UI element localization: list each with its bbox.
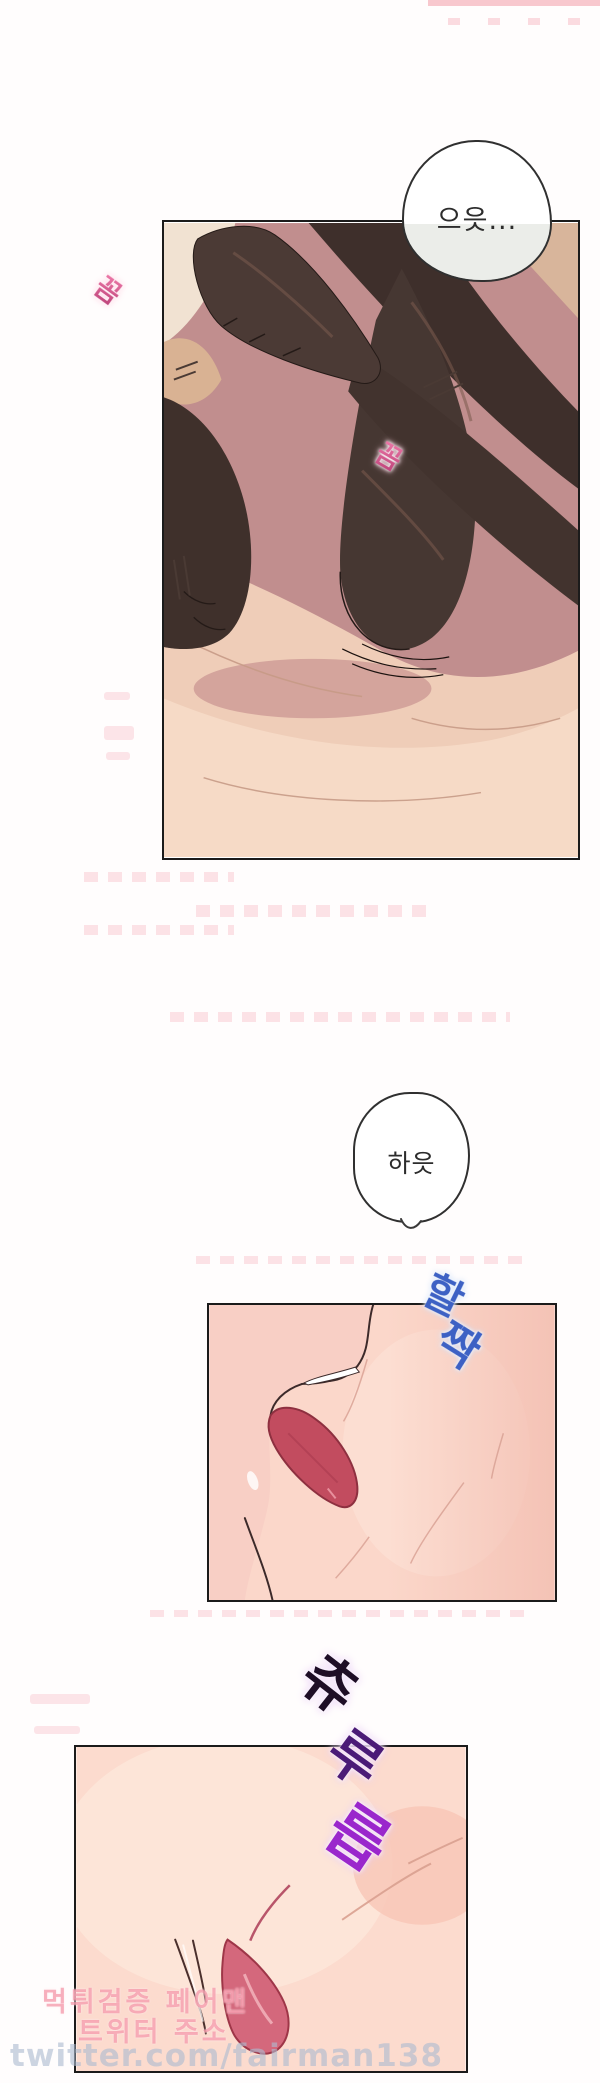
sfx-wiggle-1: 꼼지락 [88, 266, 171, 341]
watermark-top-strip [428, 0, 600, 6]
panel-1-illustration [164, 222, 578, 858]
sfx-slurp: 츄루릅 [306, 1632, 470, 1724]
panel-2-illustration [209, 1305, 555, 1600]
watermark-dot [528, 18, 540, 25]
watermark-smudge [150, 1610, 530, 1617]
speech-bubble-gasp: 하읏 [353, 1092, 470, 1223]
watermark-dot [568, 18, 580, 25]
watermark-smudge [104, 692, 130, 700]
watermark-dot [488, 18, 500, 25]
panel-1-bed-scene [162, 220, 580, 860]
panel-2-lick-scene [207, 1303, 557, 1602]
watermark-smudge [196, 1256, 526, 1264]
comic-page: 으읏... 하읏 꼼지락 꼼지락 할짝 츄루릅 먹튀검증 페어맨 트위터 주소 … [0, 0, 600, 2083]
speech-bubble-scream: 으읏... [402, 140, 552, 282]
speech-bubble-tail [398, 1218, 424, 1236]
watermark-smudge [34, 1726, 80, 1734]
watermark-url: twitter.com/fairman138 [10, 2038, 443, 2074]
watermark-dot [448, 18, 460, 25]
watermark-smudge [106, 752, 130, 760]
watermark-smudge [84, 872, 234, 882]
watermark-smudge [84, 925, 234, 935]
speech-text: 하읏 [355, 1144, 468, 1180]
watermark-smudge [196, 905, 426, 917]
watermark-smudge [170, 1012, 510, 1022]
watermark-smudge [30, 1694, 90, 1704]
speech-text: 으읏... [404, 198, 550, 237]
watermark-smudge [104, 726, 134, 740]
